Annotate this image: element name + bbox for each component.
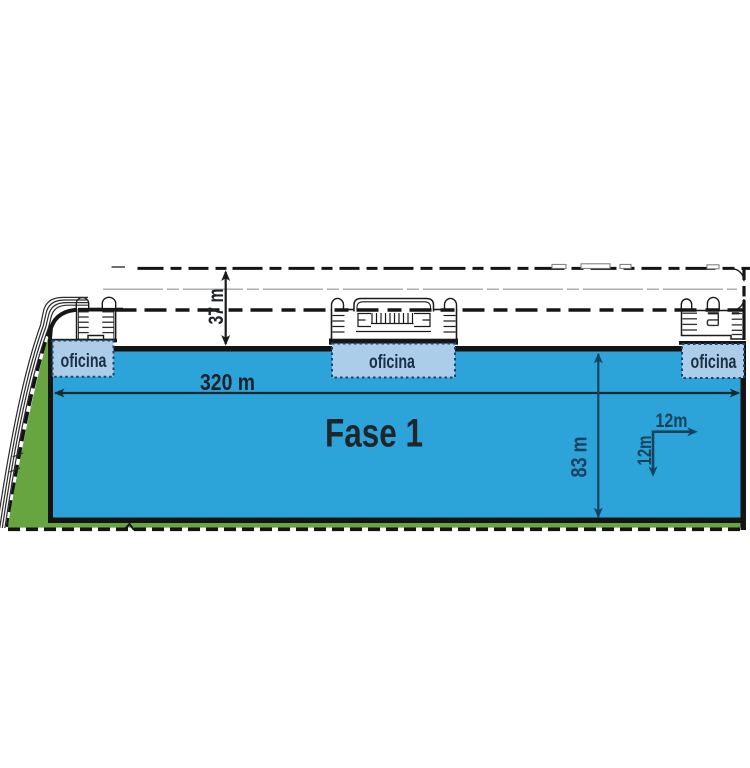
svg-text:320 m: 320 m bbox=[200, 369, 255, 395]
svg-text:12m: 12m bbox=[656, 411, 688, 432]
svg-text:83 m: 83 m bbox=[567, 437, 592, 478]
svg-text:12m: 12m bbox=[635, 436, 656, 466]
svg-text:Fase 1: Fase 1 bbox=[325, 412, 423, 456]
svg-text:oficina: oficina bbox=[691, 352, 737, 373]
svg-text:oficina: oficina bbox=[369, 352, 415, 373]
svg-text:oficina: oficina bbox=[61, 351, 107, 372]
svg-text:37 m: 37 m bbox=[205, 289, 228, 325]
